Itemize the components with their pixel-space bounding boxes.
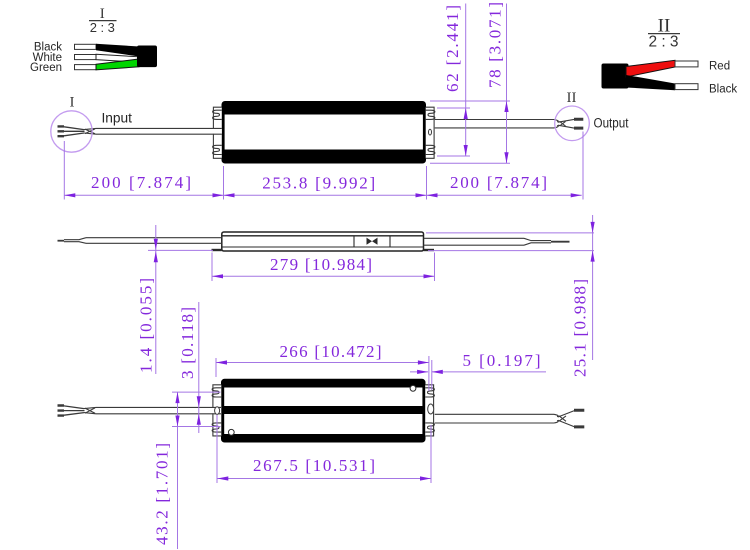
svg-text:200 [7.874]: 200 [7.874] — [450, 173, 547, 192]
svg-text:279 [10.984]: 279 [10.984] — [270, 255, 372, 274]
svg-text:2 : 3: 2 : 3 — [649, 33, 679, 50]
svg-text:266 [10.472]: 266 [10.472] — [280, 342, 382, 361]
svg-text:62 [2.441]: 62 [2.441] — [443, 5, 462, 92]
svg-text:I: I — [70, 95, 75, 111]
svg-text:78 [3.071]: 78 [3.071] — [486, 2, 505, 88]
svg-text:Black: Black — [709, 84, 737, 96]
svg-text:1.4 [0.055]: 1.4 [0.055] — [137, 278, 156, 373]
svg-text:Output: Output — [594, 116, 629, 131]
svg-text:200 [7.874]: 200 [7.874] — [91, 173, 191, 192]
svg-text:43.2 [1.701]: 43.2 [1.701] — [153, 443, 172, 545]
svg-text:2 : 3: 2 : 3 — [90, 20, 115, 35]
svg-text:Red: Red — [709, 61, 730, 73]
svg-text:Green: Green — [30, 62, 62, 74]
svg-text:II: II — [567, 90, 577, 106]
svg-text:25.1 [0.988]: 25.1 [0.988] — [571, 279, 590, 377]
svg-text:Input: Input — [102, 111, 133, 126]
svg-text:3 [0.118]: 3 [0.118] — [178, 307, 197, 379]
svg-text:267.5 [10.531]: 267.5 [10.531] — [253, 456, 375, 475]
